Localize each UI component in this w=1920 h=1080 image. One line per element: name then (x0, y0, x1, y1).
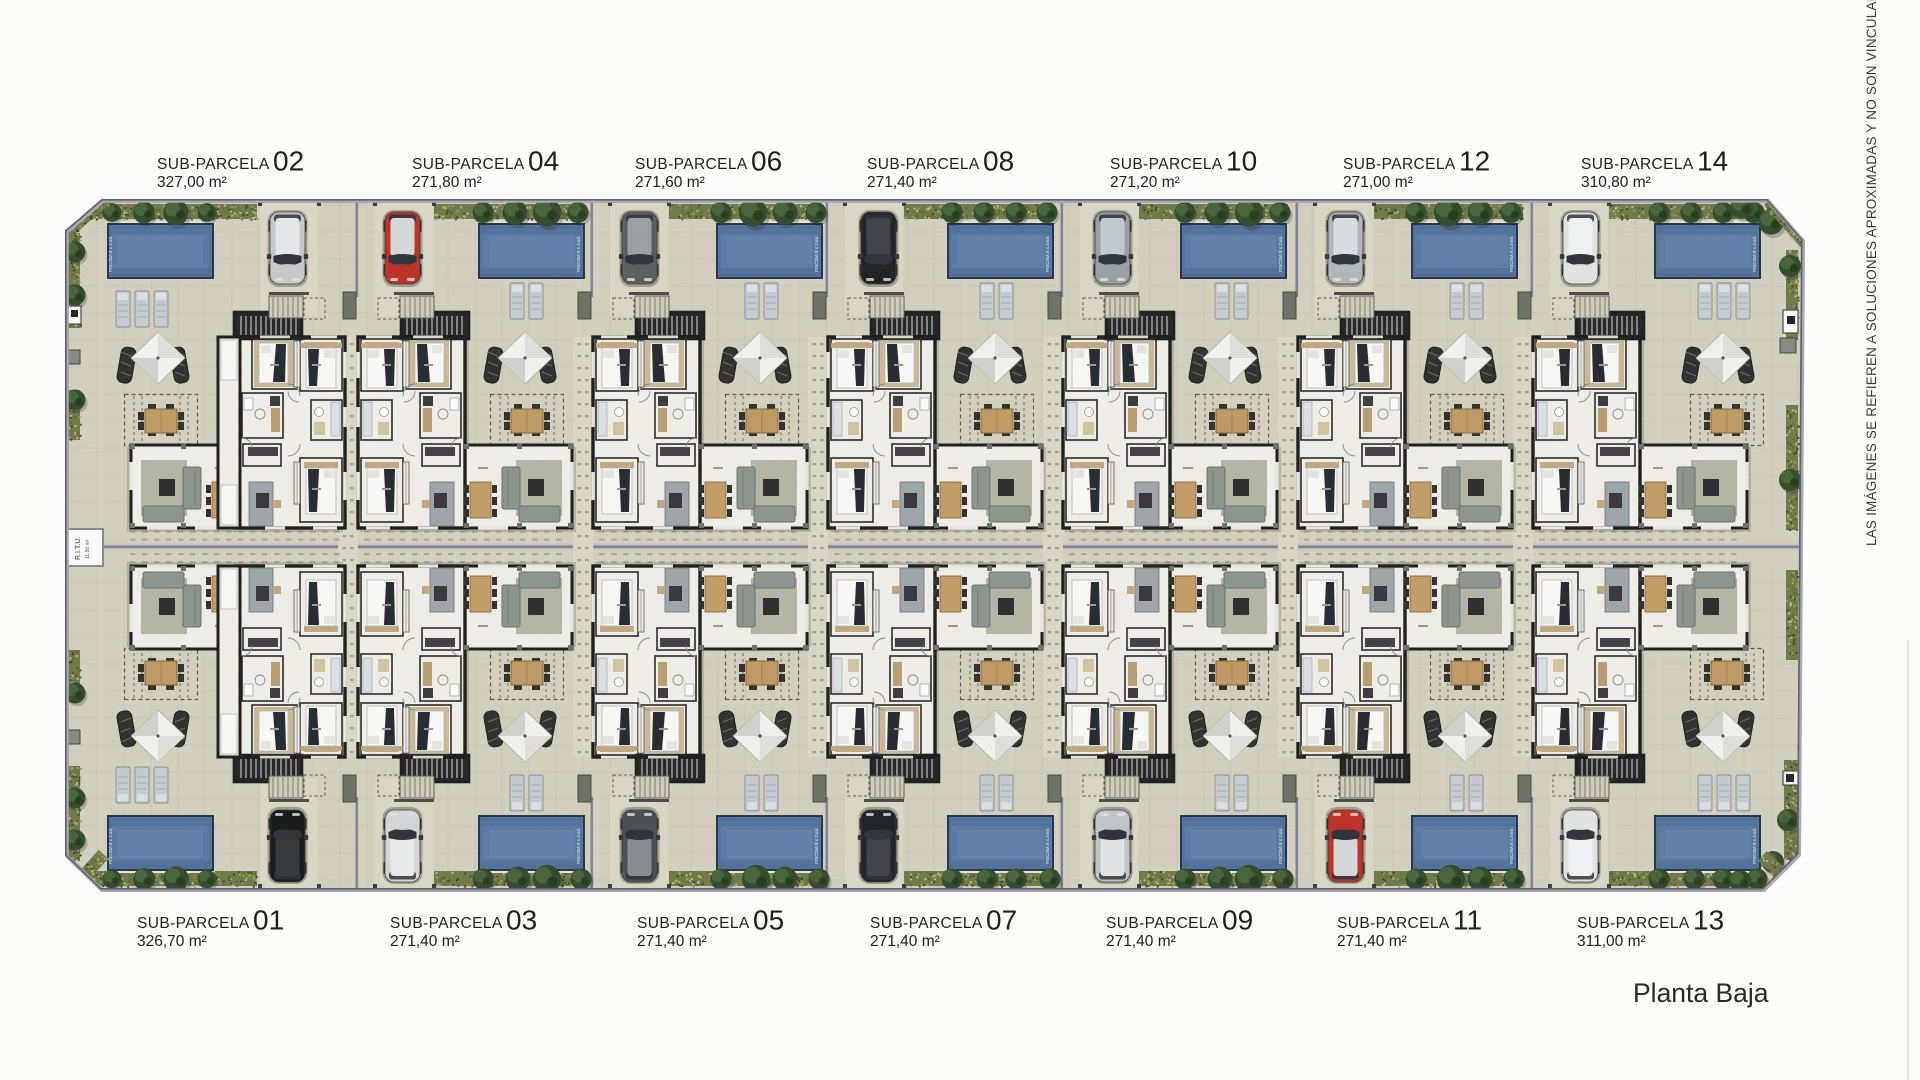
svg-text:271,00 m²: 271,00 m² (1343, 174, 1413, 191)
svg-text:07: 07 (986, 905, 1017, 936)
svg-text:14: 14 (1697, 146, 1728, 177)
svg-text:SUB-PARCELA: SUB-PARCELA (1110, 156, 1223, 173)
svg-text:SUB-PARCELA: SUB-PARCELA (1577, 915, 1690, 932)
svg-text:05: 05 (753, 905, 784, 936)
svg-text:04: 04 (528, 146, 559, 177)
svg-text:12: 12 (1459, 146, 1490, 177)
svg-text:271,40 m²: 271,40 m² (1106, 933, 1176, 950)
svg-text:271,40 m²: 271,40 m² (637, 933, 707, 950)
svg-text:271,60 m²: 271,60 m² (635, 174, 705, 191)
svg-text:10: 10 (1226, 146, 1257, 177)
svg-text:SUB-PARCELA: SUB-PARCELA (637, 915, 750, 932)
svg-text:11: 11 (1453, 905, 1482, 936)
svg-text:SUB-PARCELA: SUB-PARCELA (867, 156, 980, 173)
svg-text:SUB-PARCELA: SUB-PARCELA (635, 156, 748, 173)
svg-text:SUB-PARCELA: SUB-PARCELA (412, 156, 525, 173)
svg-text:06: 06 (751, 146, 782, 177)
svg-text:271,80 m²: 271,80 m² (412, 174, 482, 191)
svg-text:326,70 m²: 326,70 m² (137, 933, 207, 950)
svg-text:13: 13 (1693, 905, 1724, 936)
svg-text:03: 03 (506, 905, 537, 936)
svg-text:SUB-PARCELA: SUB-PARCELA (870, 915, 983, 932)
svg-text:271,40 m²: 271,40 m² (867, 174, 937, 191)
svg-text:SUB-PARCELA: SUB-PARCELA (1581, 156, 1694, 173)
svg-text:SUB-PARCELA: SUB-PARCELA (1337, 915, 1450, 932)
svg-text:01: 01 (253, 905, 284, 936)
svg-text:SUB-PARCELA: SUB-PARCELA (390, 915, 503, 932)
svg-text:271,40 m²: 271,40 m² (1337, 933, 1407, 950)
svg-text:SUB-PARCELA: SUB-PARCELA (157, 156, 270, 173)
svg-text:LAS IMÁGENES SE REFIEREN A SOL: LAS IMÁGENES SE REFIEREN A SOLUCIONES AP… (1864, 0, 1879, 546)
svg-text:271,20 m²: 271,20 m² (1110, 174, 1180, 191)
svg-text:02: 02 (273, 146, 304, 177)
svg-text:271,40 m²: 271,40 m² (390, 933, 460, 950)
svg-text:08: 08 (983, 146, 1014, 177)
svg-text:327,00 m²: 327,00 m² (157, 174, 227, 191)
svg-text:SUB-PARCELA: SUB-PARCELA (137, 915, 250, 932)
svg-text:SUB-PARCELA: SUB-PARCELA (1106, 915, 1219, 932)
svg-text:311,00 m²: 311,00 m² (1577, 933, 1646, 950)
svg-text:09: 09 (1222, 905, 1253, 936)
svg-text:SUB-PARCELA: SUB-PARCELA (1343, 156, 1456, 173)
svg-text:310,80 m²: 310,80 m² (1581, 174, 1651, 191)
svg-text:271,40 m²: 271,40 m² (870, 933, 940, 950)
svg-text:Planta Baja: Planta Baja (1633, 978, 1769, 1008)
